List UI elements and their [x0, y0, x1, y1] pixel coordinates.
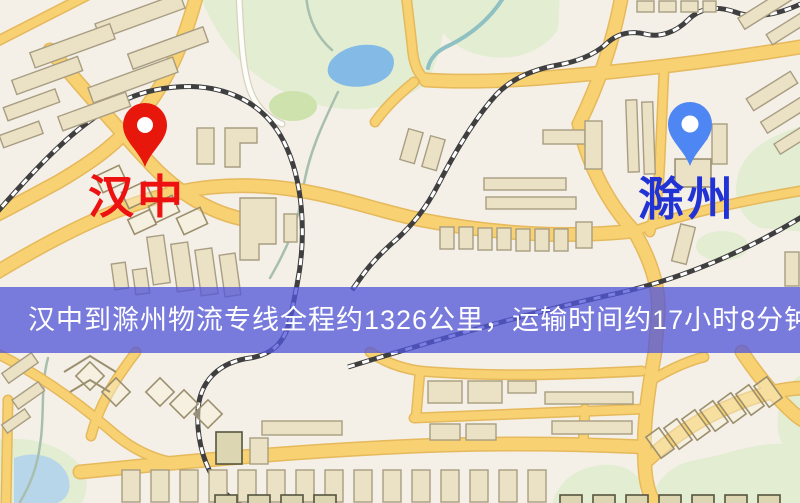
route-info-banner: 汉中到滁州物流专线全程约1326公里，运输时间约17小时8分钟. — [0, 287, 800, 353]
map-background — [0, 0, 800, 503]
destination-city-label: 滁州 — [638, 176, 736, 222]
route-info-text: 汉中到滁州物流专线全程约1326公里，运输时间约17小时8分钟. — [28, 287, 800, 353]
logistics-route-map: 汉中 滁州 汉中到滁州物流专线全程约1326公里，运输时间约17小时8分钟. — [0, 0, 800, 503]
origin-city-label: 汉中 — [88, 174, 186, 220]
